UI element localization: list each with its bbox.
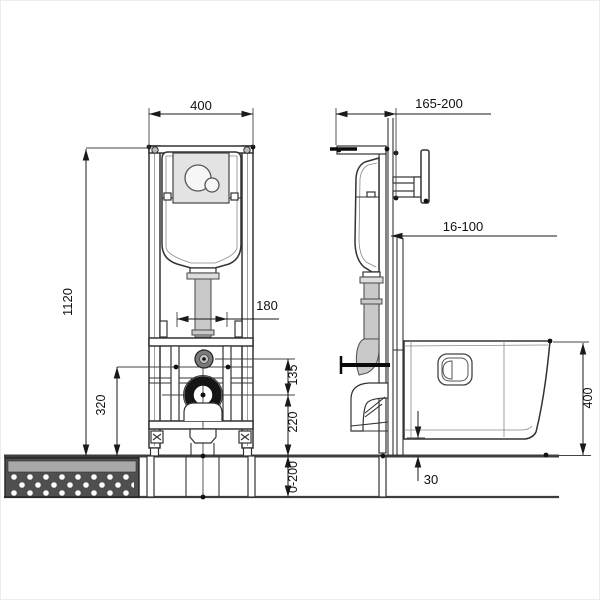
dim-label-outlet-height: 220 [286, 412, 300, 433]
toilet-bowl [393, 341, 550, 439]
wall-bracket [393, 150, 429, 203]
bowl-opening-detail [438, 354, 472, 385]
dim-label-frame-height: 1120 [60, 288, 75, 316]
water-inlet [195, 350, 213, 368]
flush-plate [173, 153, 229, 203]
side-view [330, 118, 552, 497]
dim-label-fixing-spacing: 180 [256, 298, 278, 313]
floor-drain-channel [5, 458, 139, 497]
flush-pipe-front [187, 268, 219, 337]
dim-label-bowl-floor-gap: 30 [424, 472, 438, 487]
corner-bolt-right [244, 147, 250, 153]
dim-label-inlet-height: 320 [94, 395, 108, 416]
dim-label-bowl-height: 400 [581, 388, 595, 409]
dim-label-frame-depth: 165-200 [415, 96, 463, 111]
adjustable-feet-front [147, 456, 255, 497]
dim-label-floor-buildup: 0-200 [286, 461, 300, 493]
installation-frame-drawing: 400 1120 180 320 135 220 0-200 [1, 1, 600, 601]
dim-label-frame-width: 400 [190, 98, 212, 113]
cistern-side [355, 158, 383, 283]
corner-bolt-left [152, 147, 158, 153]
flush-pipe-side [356, 283, 382, 375]
front-view [117, 145, 295, 500]
wall-lines [388, 118, 403, 456]
dim-label-inlet-to-outlet: 135 [286, 365, 300, 386]
flush-button-small [205, 178, 219, 192]
dim-label-facing-thickness: 16-100 [443, 219, 483, 234]
drain-grate-perforation [10, 473, 134, 496]
technical-drawing-page: 400 1120 180 320 135 220 0-200 [0, 0, 600, 600]
